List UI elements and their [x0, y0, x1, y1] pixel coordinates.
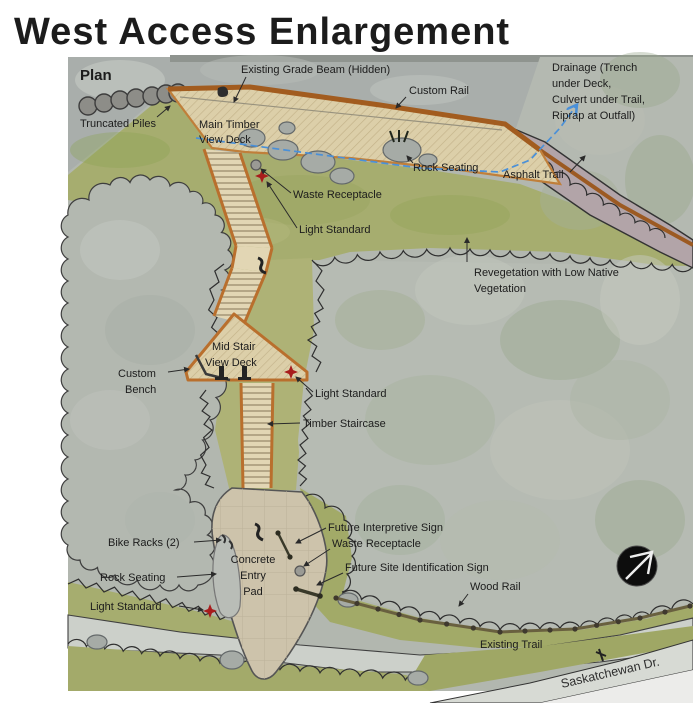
svg-text:Rock Seating: Rock Seating — [413, 162, 478, 174]
svg-text:Asphalt Trail: Asphalt Trail — [503, 169, 564, 181]
svg-text:Custom Rail: Custom Rail — [409, 85, 469, 97]
svg-text:Main Timber: Main Timber — [199, 119, 260, 131]
svg-text:Waste Receptacle: Waste Receptacle — [293, 189, 382, 201]
svg-text:Entry: Entry — [240, 570, 266, 582]
svg-text:Revegetation with Low Native: Revegetation with Low Native — [474, 267, 619, 279]
page-title: West Access Enlargement — [14, 11, 510, 53]
waste-receptacle-lower-symbol — [295, 566, 305, 576]
svg-text:under Deck,: under Deck, — [552, 78, 611, 90]
svg-text:Pad: Pad — [243, 586, 263, 598]
north-arrow — [617, 546, 657, 586]
svg-text:Light Standard: Light Standard — [299, 224, 371, 236]
plan-drawing: Plan Truncated Piles Existing Grade Beam… — [61, 52, 693, 703]
svg-text:Riprap at Outfall): Riprap at Outfall) — [552, 110, 635, 122]
svg-text:Light Standard: Light Standard — [90, 601, 162, 613]
svg-text:Light Standard: Light Standard — [315, 388, 387, 400]
svg-text:Vegetation: Vegetation — [474, 283, 526, 295]
svg-text:View Deck: View Deck — [199, 134, 251, 146]
label-existing-trail: Existing Trail — [480, 639, 542, 651]
svg-text:Future Site Identification Sig: Future Site Identification Sign — [345, 562, 489, 574]
timber-staircase — [241, 383, 273, 488]
svg-text:Waste Receptacle: Waste Receptacle — [332, 538, 421, 550]
svg-text:Truncated Piles: Truncated Piles — [80, 118, 157, 130]
svg-text:Bike Racks (2): Bike Racks (2) — [108, 537, 180, 549]
svg-text:Culvert under Trail,: Culvert under Trail, — [552, 94, 645, 106]
svg-text:Wood Rail: Wood Rail — [470, 581, 521, 593]
svg-text:Custom: Custom — [118, 368, 156, 380]
waste-receptacle-upper-symbol — [251, 160, 261, 170]
svg-text:Future Interpretive Sign: Future Interpretive Sign — [328, 522, 443, 534]
plan-label: Plan — [80, 67, 112, 84]
svg-text:Timber Staircase: Timber Staircase — [303, 418, 386, 430]
stair-landing — [232, 246, 272, 272]
site-plan-svg: West Access Enlargement — [0, 0, 693, 703]
svg-text:Concrete: Concrete — [231, 554, 276, 566]
svg-text:Rock Seating: Rock Seating — [100, 572, 165, 584]
deck-figure — [218, 87, 229, 97]
rock-seating-upper-rock — [383, 138, 421, 162]
svg-text:Existing Grade Beam (Hidden): Existing Grade Beam (Hidden) — [241, 64, 390, 76]
svg-text:Mid Stair: Mid Stair — [212, 341, 256, 353]
svg-text:View Deck: View Deck — [205, 357, 257, 369]
svg-text:Bench: Bench — [125, 384, 156, 396]
svg-text:Drainage (Trench: Drainage (Trench — [552, 62, 637, 74]
